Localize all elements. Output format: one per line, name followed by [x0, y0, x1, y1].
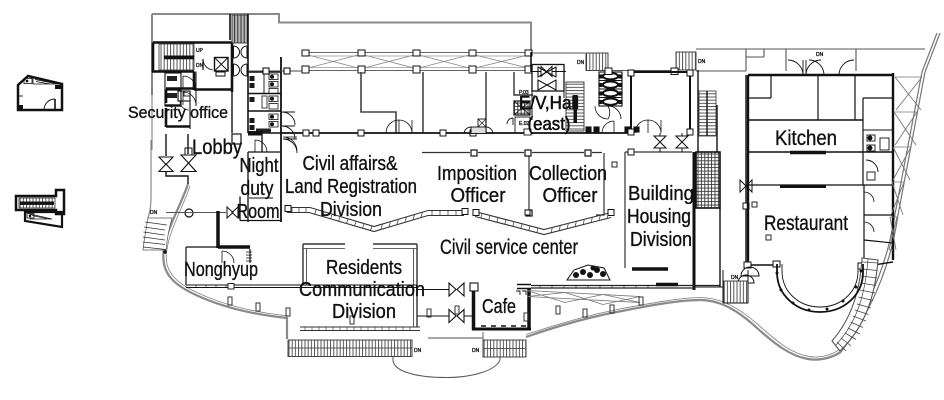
svg-text:Building: Building [628, 183, 694, 205]
svg-text:DN: DN [698, 59, 706, 65]
svg-text:Land Registration: Land Registration [285, 176, 417, 198]
svg-text:Kitchen: Kitchen [775, 127, 837, 150]
svg-text:Imposition: Imposition [437, 163, 517, 185]
svg-text:Restaurant: Restaurant [764, 212, 848, 235]
svg-text:DN: DN [731, 275, 739, 281]
svg-text:Division: Division [332, 301, 396, 323]
svg-text:DN: DN [472, 348, 480, 354]
svg-text:Officer: Officer [451, 185, 506, 207]
svg-text:Night: Night [240, 155, 279, 177]
svg-text:Nonghyup: Nonghyup [184, 259, 258, 281]
svg-text:Civil service center: Civil service center [440, 236, 578, 259]
svg-text:Lobby: Lobby [192, 136, 242, 159]
svg-text:Residents: Residents [326, 257, 402, 279]
svg-text:DN: DN [414, 348, 422, 354]
svg-text:Division: Division [630, 229, 692, 251]
svg-text:DN: DN [577, 60, 585, 66]
svg-text:Cafe: Cafe [482, 296, 516, 318]
svg-text:Communication: Communication [299, 279, 425, 301]
svg-text:DN: DN [816, 52, 824, 58]
svg-text:(east): (east) [528, 114, 571, 134]
svg-text:Division: Division [320, 199, 382, 221]
svg-text:Officer: Officer [543, 185, 598, 207]
svg-text:Civil affairs&: Civil affairs& [303, 153, 399, 175]
svg-text:duty: duty [241, 178, 274, 200]
svg-text:UP: UP [196, 48, 204, 54]
svg-text:Collection: Collection [529, 163, 607, 185]
svg-text:Room: Room [237, 201, 280, 223]
svg-text:Security office: Security office [128, 103, 228, 122]
svg-text:E/V,Hall: E/V,Hall [519, 93, 579, 113]
svg-text:Housing: Housing [627, 206, 691, 228]
svg-text:DN: DN [150, 210, 158, 216]
